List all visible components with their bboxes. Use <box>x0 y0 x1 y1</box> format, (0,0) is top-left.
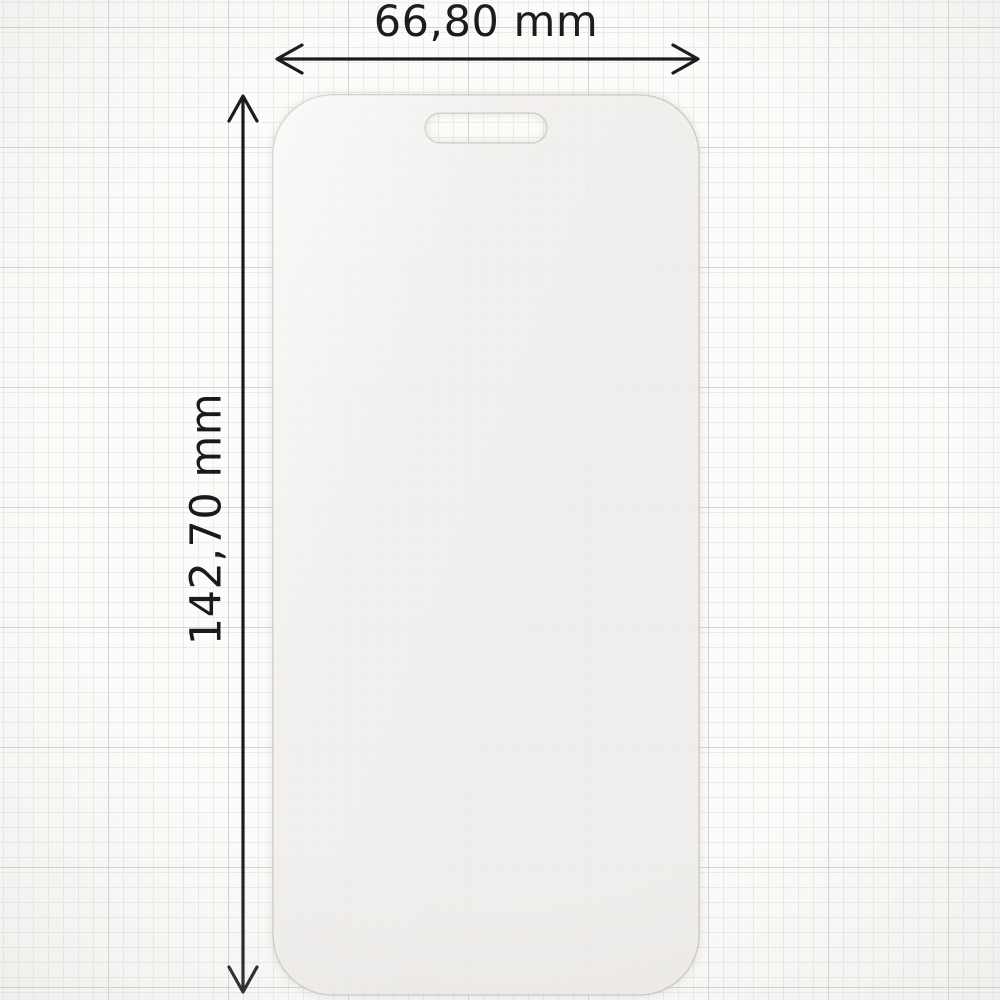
dimension-figure <box>0 0 1000 1000</box>
width-dimension-arrow-icon <box>277 45 698 73</box>
height-dimension-arrow-icon <box>229 96 257 992</box>
dynamic-island-cutout <box>425 113 547 143</box>
screen-protector-product-image: 66,80 mm 142,70 mm <box>0 0 1000 1000</box>
height-dimension-label: 142,70 mm <box>186 393 229 645</box>
glass-reflection-highlight <box>273 95 699 995</box>
width-dimension-label: 66,80 mm <box>273 1 699 44</box>
